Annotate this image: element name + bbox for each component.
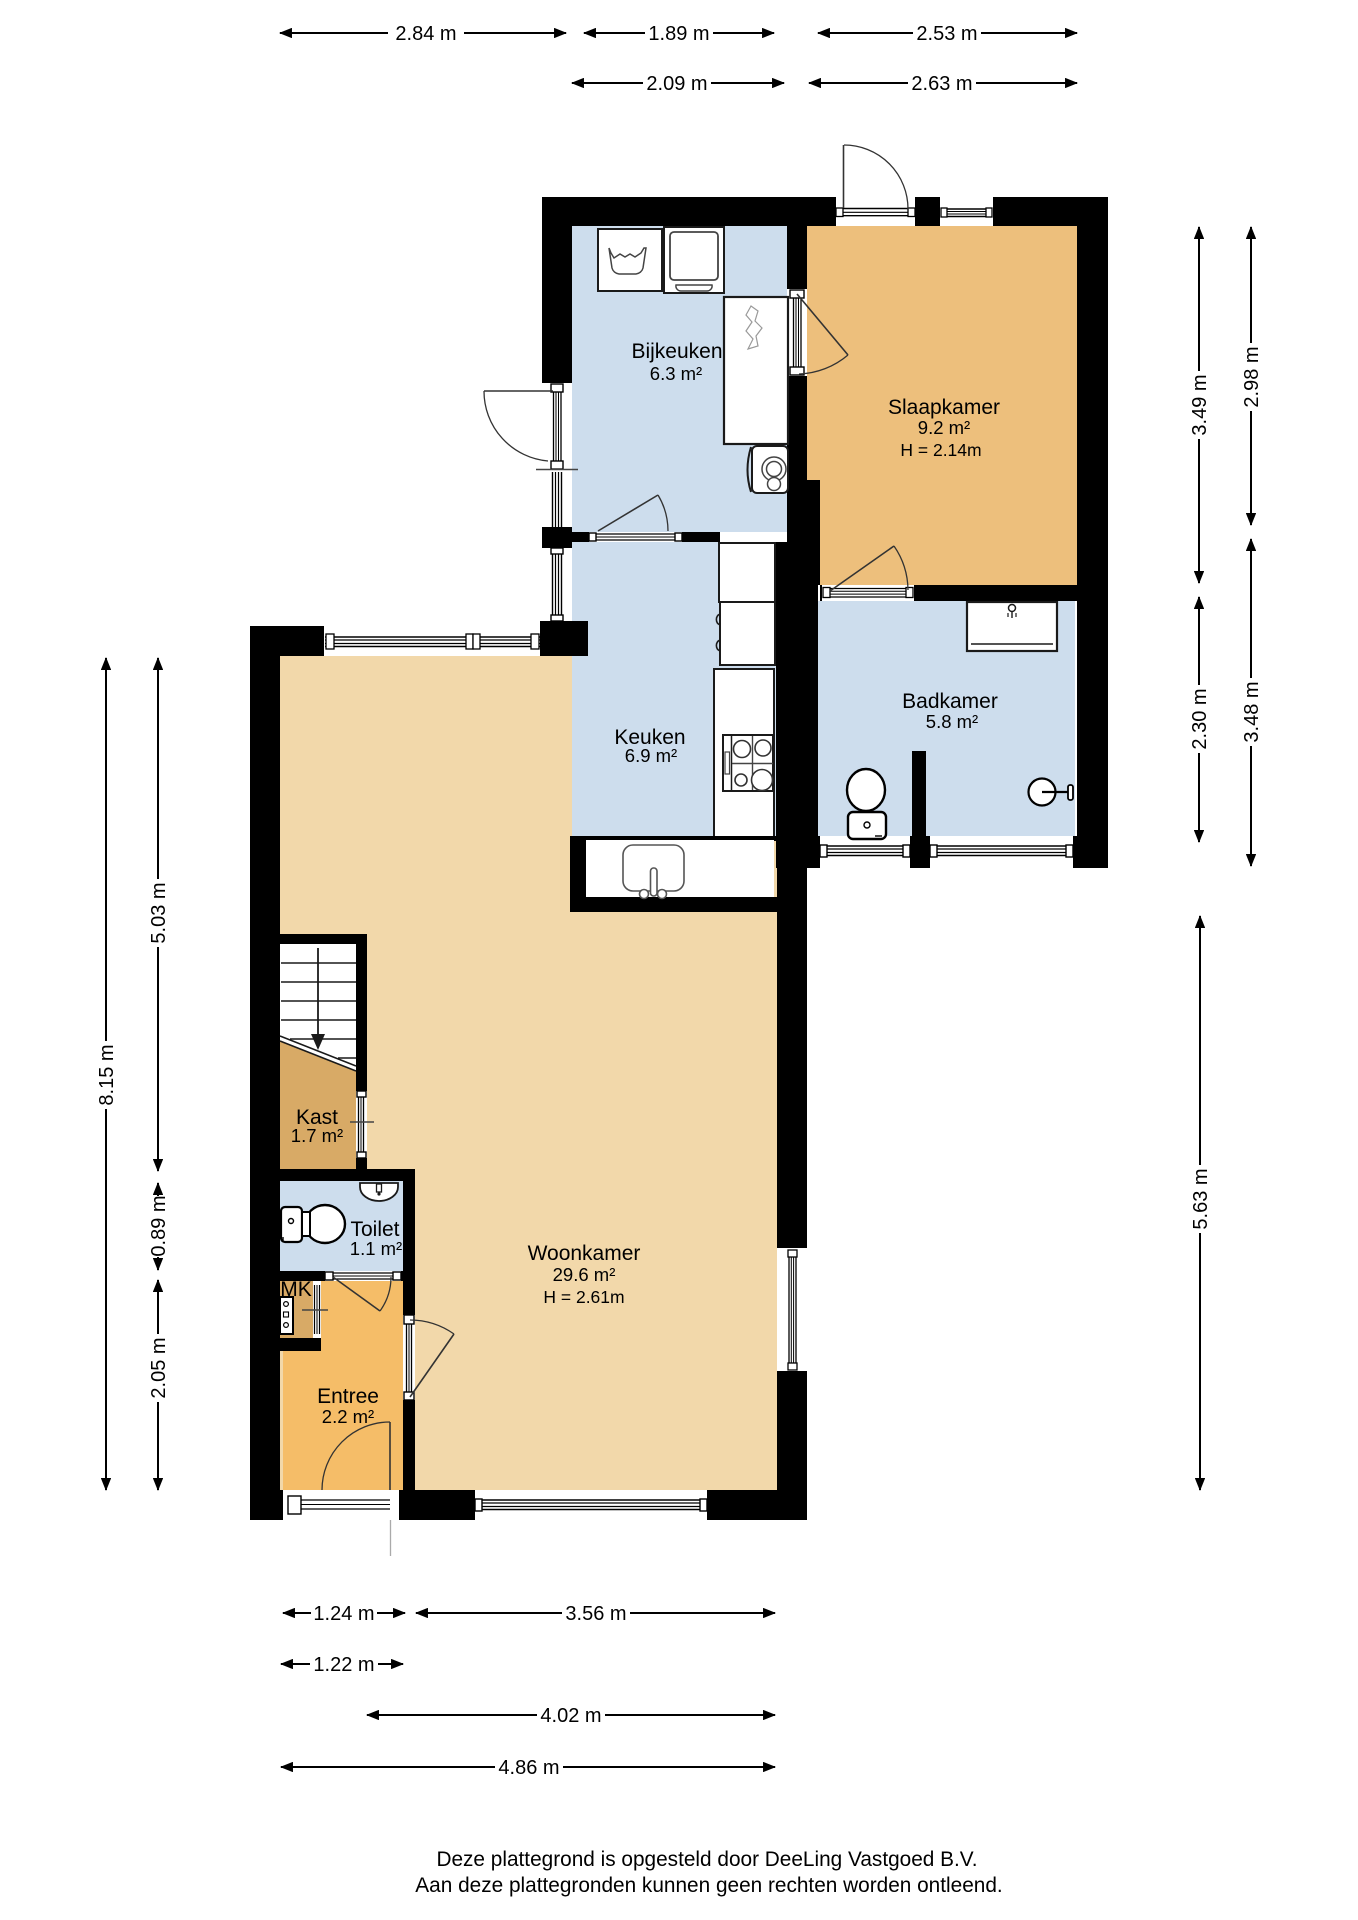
svg-text:5.63 m: 5.63 m [1190,1168,1212,1229]
svg-text:3.56 m: 3.56 m [565,1603,626,1625]
svg-text:0.89 m: 0.89 m [148,1195,170,1256]
svg-text:5.8 m²: 5.8 m² [926,711,978,732]
svg-text:3.48 m: 3.48 m [1241,681,1263,742]
svg-text:29.6 m²: 29.6 m² [553,1264,616,1285]
svg-text:H = 2.14m: H = 2.14m [900,440,981,460]
svg-text:1.7 m²: 1.7 m² [291,1125,343,1146]
svg-text:2.30 m: 2.30 m [1189,688,1211,749]
svg-text:1.22 m: 1.22 m [313,1654,374,1676]
svg-text:Slaapkamer: Slaapkamer [888,396,1000,419]
svg-text:2.09 m: 2.09 m [646,73,707,95]
svg-text:2.05 m: 2.05 m [148,1337,170,1398]
svg-text:Aan deze plattegronden kunnen: Aan deze plattegronden kunnen geen recht… [415,1874,1002,1897]
svg-text:2.63 m: 2.63 m [911,73,972,95]
svg-text:4.86 m: 4.86 m [498,1757,559,1779]
svg-text:8.15 m: 8.15 m [96,1044,118,1105]
svg-text:1.89 m: 1.89 m [648,23,709,45]
svg-text:H = 2.61m: H = 2.61m [543,1287,624,1307]
svg-text:2.98 m: 2.98 m [1241,346,1263,407]
svg-text:MK: MK [280,1278,312,1301]
svg-text:1.1 m²: 1.1 m² [350,1238,402,1259]
svg-text:2.2 m²: 2.2 m² [322,1406,374,1427]
svg-text:2.53 m: 2.53 m [916,23,977,45]
svg-text:9.2 m²: 9.2 m² [918,417,970,438]
svg-text:Bijkeuken: Bijkeuken [631,340,722,363]
svg-text:6.3 m²: 6.3 m² [650,363,702,384]
svg-text:6.9 m²: 6.9 m² [625,745,677,766]
svg-text:2.84 m: 2.84 m [395,23,456,45]
svg-text:Badkamer: Badkamer [902,690,998,713]
svg-text:Deze plattegrond is opgesteld: Deze plattegrond is opgesteld door DeeLi… [436,1848,977,1871]
svg-text:1.24 m: 1.24 m [313,1603,374,1625]
svg-text:Woonkamer: Woonkamer [528,1242,641,1265]
svg-text:4.02 m: 4.02 m [540,1705,601,1727]
svg-text:Entree: Entree [317,1385,379,1408]
svg-text:3.49 m: 3.49 m [1189,374,1211,435]
svg-text:5.03 m: 5.03 m [148,882,170,943]
